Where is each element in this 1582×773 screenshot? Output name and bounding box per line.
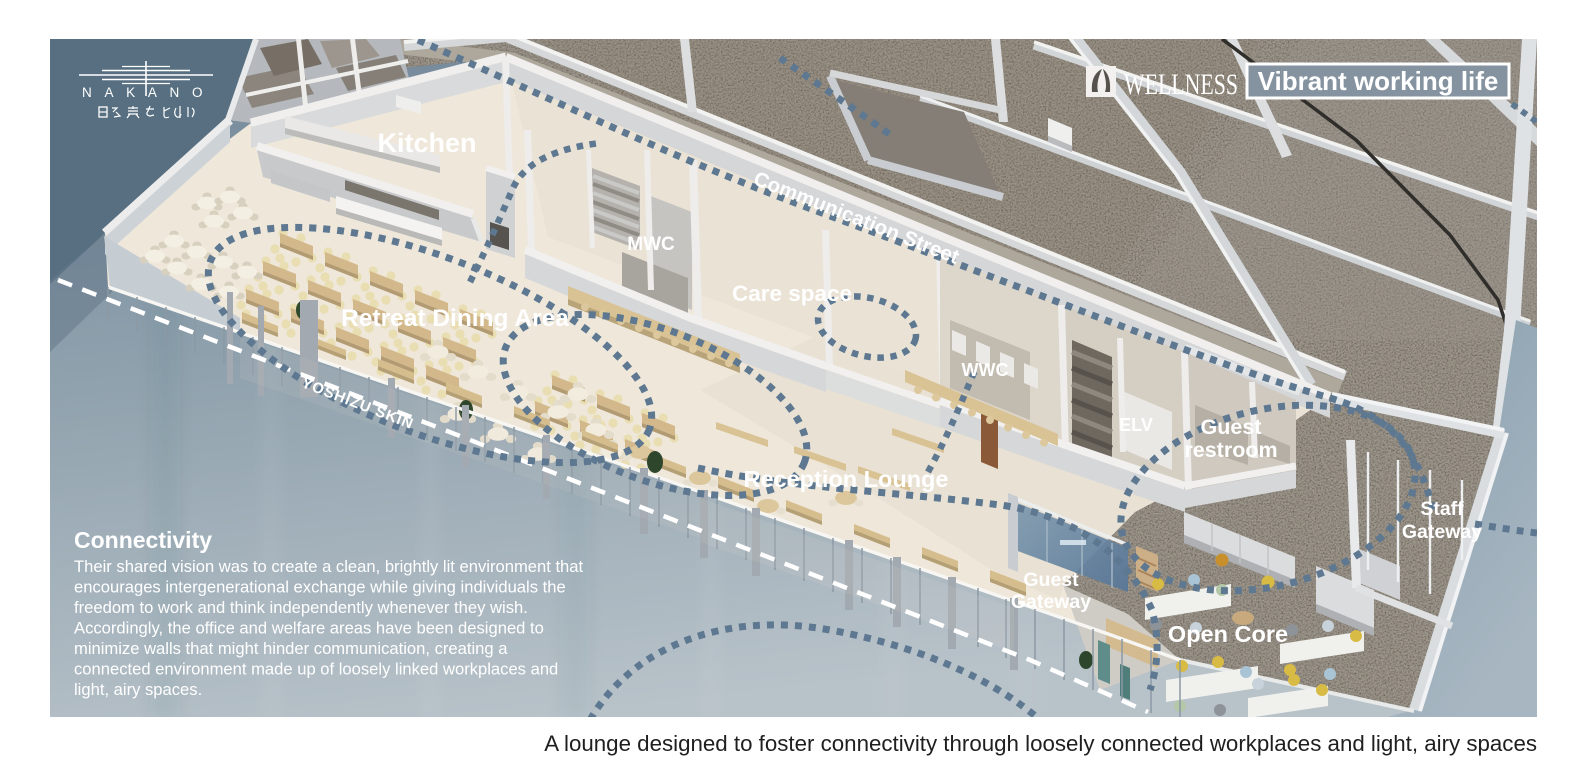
svg-text:Guest: Guest bbox=[1023, 569, 1079, 591]
svg-text:Connectivity: Connectivity bbox=[74, 527, 212, 553]
svg-text:Kitchen: Kitchen bbox=[377, 128, 476, 158]
svg-text:Guest: Guest bbox=[1201, 415, 1262, 439]
svg-text:Retreat Dining Area: Retreat Dining Area bbox=[341, 305, 569, 332]
svg-text:freedom to work and think inde: freedom to work and think independently … bbox=[74, 598, 528, 617]
svg-text:ELV: ELV bbox=[1119, 415, 1153, 435]
svg-text:Gateway: Gateway bbox=[1011, 591, 1091, 613]
svg-text:Open Core: Open Core bbox=[1168, 621, 1288, 647]
svg-text:encourages intergenerational e: encourages intergenerational exchange wh… bbox=[74, 578, 566, 597]
svg-text:Staff: Staff bbox=[1420, 498, 1464, 520]
svg-text:WWC: WWC bbox=[962, 360, 1009, 380]
svg-text:Care space: Care space bbox=[732, 281, 852, 306]
svg-text:connected environment made up: connected environment made up of loosely… bbox=[74, 660, 558, 679]
svg-text:restroom: restroom bbox=[1184, 438, 1277, 462]
svg-text:Vibrant working life: Vibrant working life bbox=[1258, 66, 1499, 96]
svg-text:light, airy spaces.: light, airy spaces. bbox=[74, 680, 202, 699]
svg-text:minimize walls that might hind: minimize walls that might hinder communi… bbox=[74, 639, 508, 658]
svg-text:A lounge designed to foster co: A lounge designed to foster connectivity… bbox=[544, 731, 1537, 756]
svg-text:WELLNESS: WELLNESS bbox=[1124, 68, 1238, 101]
svg-text:Reception Lounge: Reception Lounge bbox=[744, 466, 949, 492]
svg-text:MWC: MWC bbox=[627, 234, 675, 255]
svg-text:Accordingly, the office and we: Accordingly, the office and welfare area… bbox=[74, 619, 544, 638]
svg-text:Gateway: Gateway bbox=[1402, 521, 1482, 543]
svg-text:Their shared vision was to cre: Their shared vision was to create a clea… bbox=[74, 557, 584, 576]
